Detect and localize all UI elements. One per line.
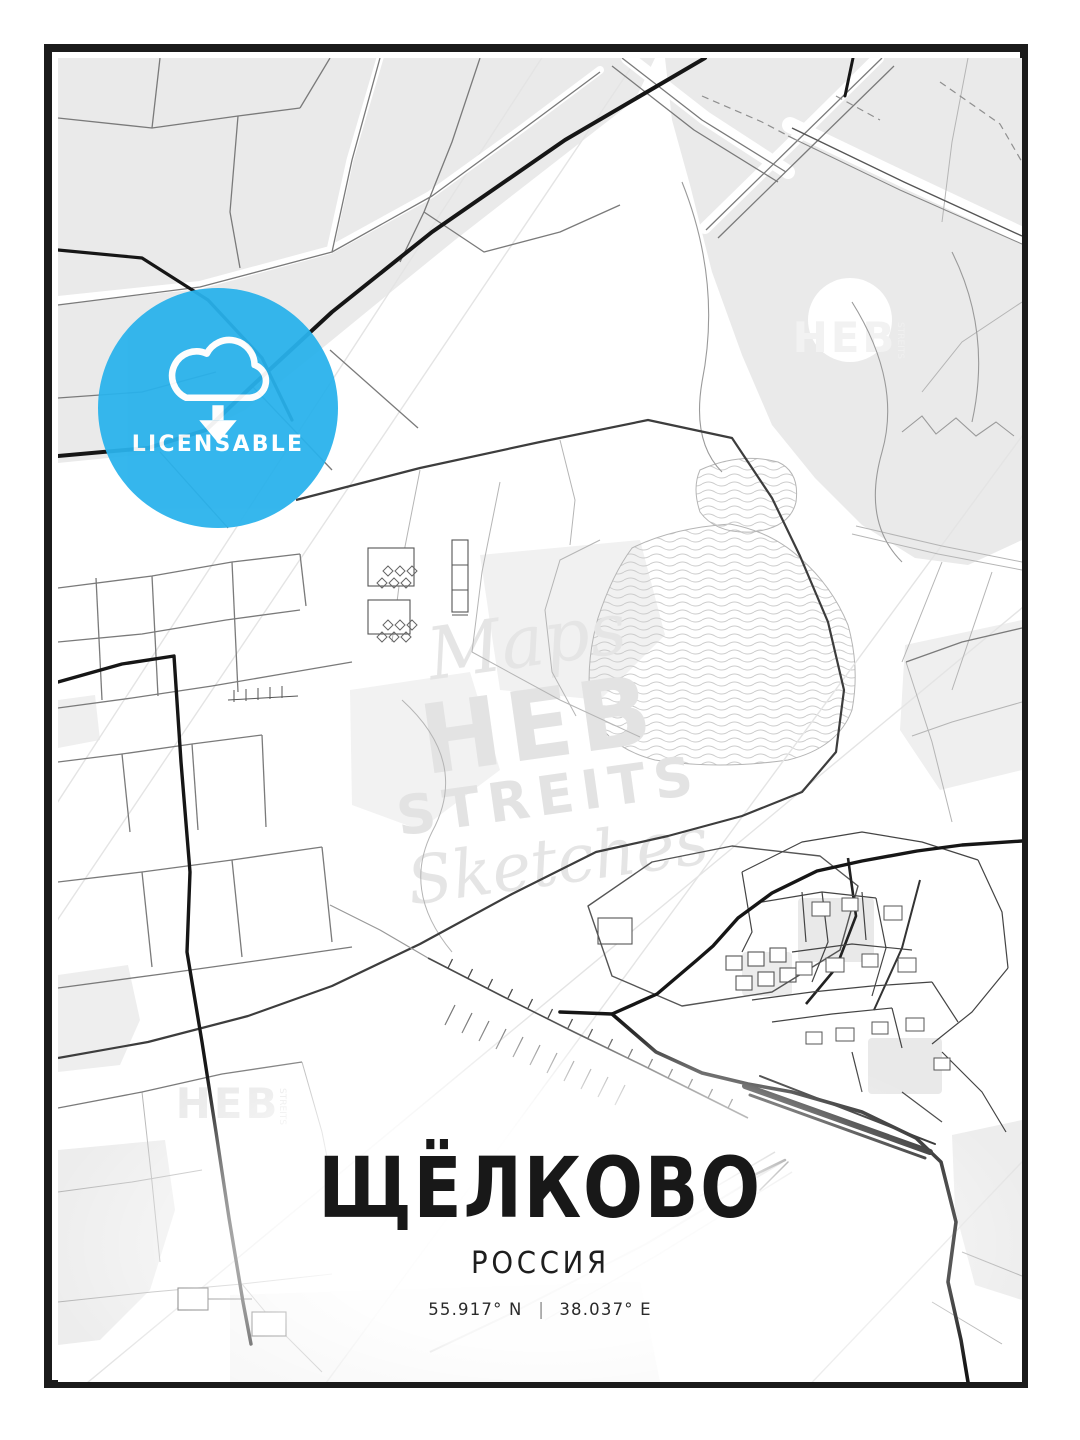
country-text: РОССИЯ [471,1246,610,1281]
watermark-corner-small-text: STREITS [895,322,905,359]
latitude-text: 55.917° N [428,1300,522,1319]
watermark-corner-text: HEB [176,1079,281,1128]
longitude-text: 38.037° E [559,1300,651,1319]
city-name-text: ЩЁЛКОВО [318,1146,762,1230]
watermark-corner-top-right: HEB STREITS [793,313,905,362]
licensable-badge: LICENSABLE [98,288,338,528]
watermark-corner-small-text: STREITS [277,1088,287,1125]
country-subtitle: РОССИЯ [58,1246,1022,1281]
watermark-corner-bottom-left: HEB STREITS [176,1079,287,1128]
coordinates-line: 55.917° N|38.037° E [58,1300,1022,1319]
watermark-corner-text: HEB [793,313,898,362]
cloud-download-icon [143,304,293,454]
coordinates-separator: | [539,1300,543,1319]
page-title: ЩЁЛКОВО [58,1146,1022,1230]
